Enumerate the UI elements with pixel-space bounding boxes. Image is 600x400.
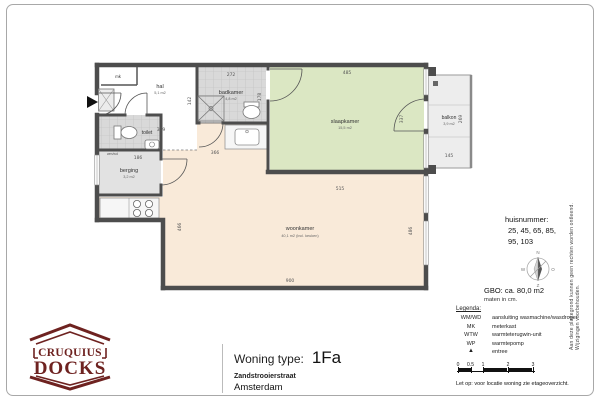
room-area-berging: 3,2 m2	[123, 175, 135, 179]
room-label-toilet: toilet	[142, 130, 153, 136]
room-area-badkamer: 4,8 m2	[225, 97, 237, 101]
toilet-icon	[114, 126, 137, 139]
dim-balkon-h: 269	[458, 115, 464, 124]
room-label-balkon: balkon	[442, 115, 457, 121]
room-label-berging: berging	[120, 168, 138, 174]
woning-type-label: Woning type:	[234, 352, 304, 366]
legend-desc: warmteterugwin-unit	[486, 332, 542, 338]
units-note: maten in cm.	[484, 297, 517, 303]
room-label-woonkamer: woonkamer	[285, 226, 315, 232]
dim-woonkamer-left-h: 466	[177, 223, 183, 232]
entree-triangle-icon: ▲	[456, 349, 486, 355]
dim-hal-w: 309	[157, 127, 166, 133]
legend-title: Legenda:	[456, 306, 586, 312]
legend-abbr: WP	[456, 341, 486, 347]
scale-segment	[509, 368, 532, 372]
meterkast-shaft	[99, 89, 115, 111]
label-wmwd: wm/wd	[107, 152, 118, 156]
compass-w: W	[521, 267, 526, 272]
scale-segment	[484, 368, 507, 372]
legend-desc-entree: entree	[486, 349, 508, 355]
legend-abbr: MK	[456, 324, 486, 330]
legend-abbr: WM/WD	[456, 315, 486, 321]
floor-plan-drawing: 309 142 272 178 485 337 145 269 186 366 …	[85, 55, 475, 300]
kitchen-counter-top	[225, 125, 267, 149]
legend-row: WP warmtepomp	[456, 341, 586, 347]
dim-woonkamer-w: 900	[286, 278, 295, 284]
disclaimer-vertical: Aan deze plattegrond kunnen geen rechten…	[569, 200, 581, 350]
entree-arrow-icon	[87, 96, 98, 108]
legend-desc: warmtepomp	[486, 341, 524, 347]
dim-balkon-w: 145	[445, 153, 454, 159]
dim-slaapkamer-h: 337	[399, 115, 405, 124]
logo-text-bottom: DOCKS	[34, 358, 107, 379]
attention-note: Let op: voor locatie woning zie etageove…	[456, 381, 569, 387]
room-area-balkon: 3,9 m2	[443, 122, 455, 126]
floor-plan: 309 142 272 178 485 337 145 269 186 366 …	[85, 55, 475, 300]
legend-desc: meterkast	[486, 324, 516, 330]
cruquius-docks-logo: CRUQUIUS DOCKS	[24, 318, 116, 397]
washbasin-toilet-icon	[145, 140, 159, 149]
dim-kitchen-w: 366	[211, 150, 220, 156]
room-label-hal: hal	[156, 84, 163, 90]
title-block: Woning type: 1Fa Zandstrooierstraat Amst…	[234, 348, 341, 393]
legend-row-entree: ▲ entree	[456, 349, 586, 355]
gbo-note: GBO: ca. 80,0 m2	[484, 286, 544, 295]
kitchen-counter-stove	[100, 198, 159, 218]
dim-badkamer-h: 178	[257, 93, 263, 102]
legend-row: WTW warmteterugwin-unit	[456, 332, 586, 338]
legend-row: MK meterkast	[456, 324, 586, 330]
dim-slaapkamer-w: 485	[343, 70, 352, 76]
room-area-slaapkamer: 15,5 m2	[338, 126, 352, 130]
room-label-slaapkamer: slaapkamer	[331, 119, 360, 125]
city-name: Amsterdam	[234, 382, 341, 393]
floorplan-sheet: 309 142 272 178 485 337 145 269 186 366 …	[0, 0, 600, 400]
legend-row: WM/WD aansluiting wasmachine/wasdroger	[456, 315, 586, 321]
scale-bar: 0 0.5 1 2 3	[457, 362, 547, 378]
legend-desc: aansluiting wasmachine/wasdroger	[486, 315, 578, 321]
room-area-woonkamer: 40,1 m2 (incl. keuken)	[281, 234, 319, 238]
dim-badkamer-w: 272	[227, 72, 236, 78]
room-label-badkamer: badkamer	[219, 90, 244, 96]
dim-woonkamer-mid-w: 515	[336, 186, 345, 192]
woning-type-value: 1Fa	[312, 348, 341, 368]
scale-tickmark	[471, 367, 472, 373]
scale-tickmark	[533, 367, 534, 373]
street-name: Zandstrooierstraat	[234, 373, 341, 380]
room-label-mk: mk	[115, 74, 121, 79]
compass-n: N	[536, 250, 539, 255]
dim-berging-w: 186	[134, 155, 143, 161]
legend: Legenda: WM/WD aansluiting wasmachine/wa…	[456, 306, 586, 358]
scale-segment	[458, 368, 471, 372]
titleblock-divider	[222, 344, 223, 393]
washbasin-badkamer-icon	[243, 102, 260, 119]
dim-hal-h: 142	[187, 97, 193, 106]
dim-woonkamer-right-h: 486	[408, 227, 414, 236]
legend-abbr: WTW	[456, 332, 486, 338]
room-area-hal: 5,1 m2	[154, 91, 166, 95]
compass-e: O	[551, 267, 555, 272]
